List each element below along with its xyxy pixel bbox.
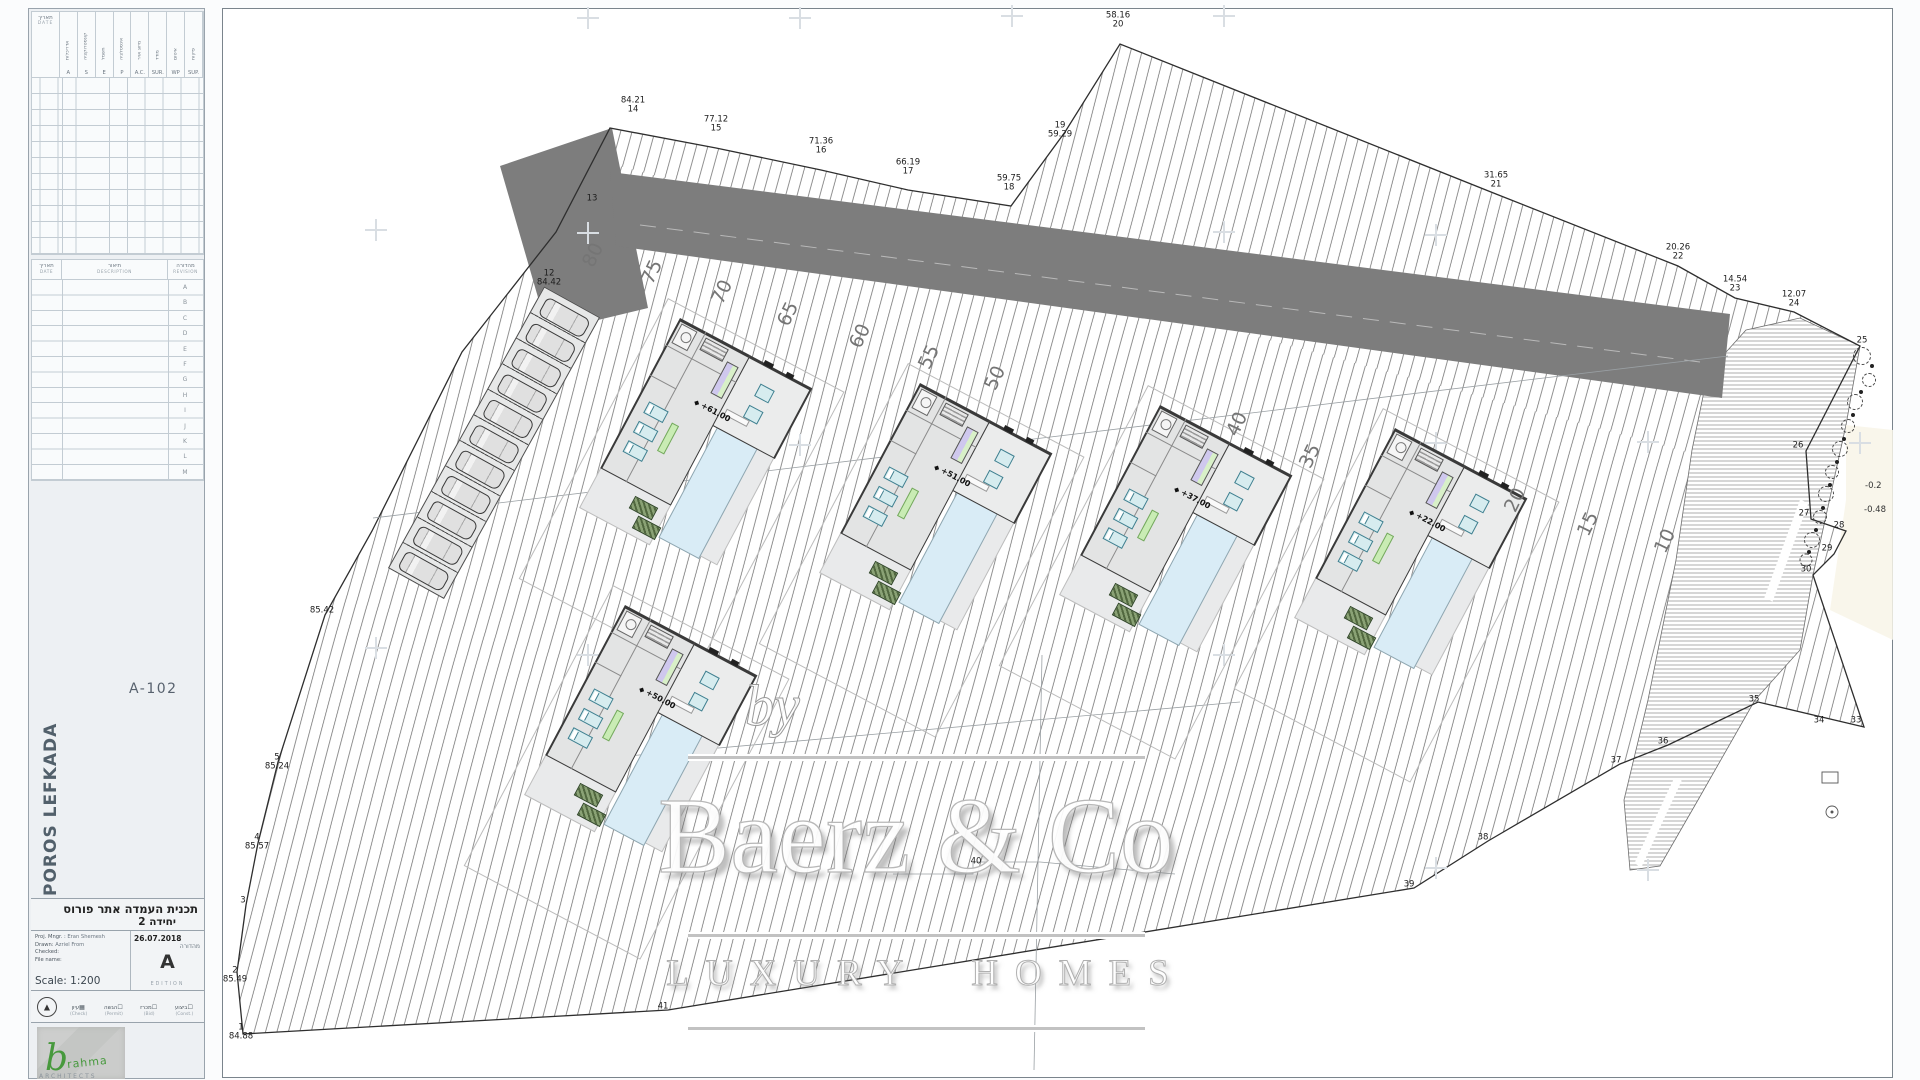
survey-point-label: 71.3616 bbox=[809, 137, 833, 156]
shrub-dot-icon bbox=[1814, 528, 1818, 532]
info-block: Proj. Mngr. : Eran Shemesh Drawn: Azriel… bbox=[31, 931, 204, 991]
revision-column-header: מהדורהREVISION bbox=[168, 260, 203, 279]
scale-label: Scale: 1:200 bbox=[35, 975, 100, 987]
survey-point-label: 26 bbox=[1793, 442, 1804, 451]
tree-icon bbox=[1832, 441, 1848, 457]
discipline-column-header: מיזוג אויר A.C. bbox=[131, 12, 149, 77]
survey-point-label: 36 bbox=[1658, 738, 1669, 747]
survey-point-label: 27 bbox=[1799, 510, 1810, 519]
shrub-dot-icon bbox=[1807, 550, 1811, 554]
survey-point-label: 35 bbox=[1749, 696, 1760, 705]
revision-letter: F bbox=[167, 357, 203, 372]
checkbox-icon: ☐ bbox=[187, 1004, 192, 1011]
status-stamp: מכרז☐ (Bid) bbox=[132, 995, 167, 1018]
survey-point-label: 59.7518 bbox=[997, 174, 1021, 193]
survey-point-label: 20.2622 bbox=[1666, 243, 1690, 262]
tree-icon bbox=[1804, 532, 1820, 548]
survey-point-label: 13 bbox=[587, 195, 598, 204]
edition-letter: A bbox=[131, 951, 204, 973]
checkbox-icon: ☐ bbox=[117, 1004, 122, 1011]
logo-rahma-text: rahma bbox=[66, 1054, 108, 1071]
survey-point-label: 184.88 bbox=[229, 1023, 253, 1042]
survey-point-label: 77.1215 bbox=[704, 115, 728, 134]
edition-label-he: מהדורה bbox=[180, 943, 200, 950]
tree-icon bbox=[1853, 347, 1871, 365]
survey-point-label: 28 bbox=[1834, 522, 1845, 531]
survey-point-label: 3 bbox=[240, 897, 245, 906]
revision-letter: H bbox=[167, 388, 203, 403]
survey-point-label: 40 bbox=[971, 858, 982, 867]
revision-letter: M bbox=[167, 465, 203, 480]
survey-point-label: 84.2114 bbox=[621, 96, 645, 115]
revision-letter: E bbox=[167, 342, 203, 357]
status-stamp: הגשה☐ (Permit) bbox=[96, 995, 131, 1018]
date-column-header: תאריךDATE bbox=[32, 12, 60, 77]
status-stamp: ביצוע☐ (Const.) bbox=[167, 995, 202, 1018]
shrub-dot-icon bbox=[1828, 483, 1832, 487]
checkbox-icon: ▦ bbox=[79, 1004, 85, 1011]
survey-point-label: 585.24 bbox=[265, 753, 289, 772]
description-column-header: תיאורDESCRIPTION bbox=[62, 260, 168, 279]
drawing-title: תכנית העמדה אתר פורוס bbox=[31, 902, 198, 916]
revision-letter: C bbox=[167, 311, 203, 326]
revision-letter: L bbox=[167, 449, 203, 464]
survey-point-label: 12.0724 bbox=[1782, 290, 1806, 309]
status-stamp-row: עיון▦ (Check) הגשה☐ (Permit) מכרז☐ (Bid)… bbox=[31, 991, 204, 1023]
discipline-column-header: אדריכלות A bbox=[60, 12, 78, 77]
revision-table-rows bbox=[32, 78, 203, 254]
survey-point-label: 30 bbox=[1801, 566, 1812, 575]
tree-icon bbox=[1847, 394, 1863, 410]
survey-point-label: 25 bbox=[1857, 337, 1868, 346]
survey-point-label: 34 bbox=[1814, 717, 1825, 726]
discipline-column-header: איטום WP bbox=[167, 12, 185, 77]
shrub-dot-icon bbox=[1859, 390, 1863, 394]
survey-point-label: 33 bbox=[1851, 717, 1862, 726]
revision-letter: I bbox=[167, 403, 203, 418]
shrub-dot-icon bbox=[1851, 413, 1855, 417]
shrub-dot-icon bbox=[1835, 460, 1839, 464]
survey-point-label: 1959.29 bbox=[1048, 121, 1072, 140]
description-revision-table: תאריךDATE תיאורDESCRIPTION מהדורהREVISIO… bbox=[31, 259, 204, 481]
depth-mark-label: -0.2 bbox=[1865, 481, 1882, 491]
discipline-column-header: קונסטרוקציה S bbox=[78, 12, 96, 77]
discipline-column-header: אינסטלציה P bbox=[114, 12, 132, 77]
revision-letter: J bbox=[167, 419, 203, 434]
survey-point-label: 485.57 bbox=[245, 833, 269, 852]
revision-letter: B bbox=[167, 295, 203, 310]
revision-rows: ABCDEFGHIJKLM bbox=[32, 280, 203, 480]
tree-icon bbox=[1862, 373, 1876, 387]
shrub-dot-icon bbox=[1842, 437, 1846, 441]
terrain-contours bbox=[237, 44, 1864, 1034]
survey-point-label: 41 bbox=[658, 1003, 669, 1012]
drawing-subtitle: יחידה 2 bbox=[31, 916, 198, 928]
survey-point-label: 39 bbox=[1404, 881, 1415, 890]
date-column-header: תאריךDATE bbox=[32, 260, 62, 279]
issue-date: 26.07.2018 bbox=[134, 934, 181, 943]
logo-b-glyph: b bbox=[45, 1041, 68, 1077]
shrub-dot-icon bbox=[1821, 506, 1825, 510]
discipline-column-header: פיקוח SUP. bbox=[185, 12, 203, 77]
north-arrow-icon bbox=[37, 997, 57, 1017]
survey-point-label: 58.1620 bbox=[1106, 11, 1130, 30]
tree-icon bbox=[1818, 486, 1834, 502]
survey-point-label: 31.6521 bbox=[1484, 171, 1508, 190]
survey-point-label: 285.49 bbox=[223, 966, 247, 985]
depth-mark-label: -0.48 bbox=[1864, 505, 1886, 515]
revision-letter: A bbox=[167, 280, 203, 295]
shrub-dot-icon bbox=[1870, 364, 1874, 368]
tree-icon bbox=[1813, 510, 1827, 524]
architect-logo: b rahma bbox=[37, 1027, 125, 1079]
tree-icon bbox=[1841, 419, 1855, 433]
edition-label-en: EDITION bbox=[131, 982, 204, 987]
discipline-column-header: מודד SUR. bbox=[149, 12, 167, 77]
revision-letter: K bbox=[167, 434, 203, 449]
revision-letter: D bbox=[167, 326, 203, 341]
discipline-column-header: חשמל E bbox=[96, 12, 114, 77]
survey-point-label: 85.42 bbox=[310, 607, 334, 616]
survey-point-label: 37 bbox=[1611, 757, 1622, 766]
survey-point-label: 66.1917 bbox=[896, 158, 920, 177]
status-stamp: עיון▦ (Check) bbox=[61, 995, 96, 1018]
revision-letter: G bbox=[167, 372, 203, 387]
survey-point-label: 1284.42 bbox=[537, 269, 561, 288]
tree-icon bbox=[1825, 465, 1839, 479]
checkbox-icon: ☐ bbox=[152, 1004, 157, 1011]
discipline-revision-table: תאריךDATE אדריכלות A קונסטרוקציה S חשמל … bbox=[31, 11, 204, 255]
survey-point-label: 29 bbox=[1822, 545, 1833, 554]
survey-point-label: 38 bbox=[1478, 834, 1489, 843]
survey-point-label: 14.5423 bbox=[1723, 275, 1747, 294]
structure-square bbox=[1822, 772, 1838, 783]
drawn-by: Azriel From bbox=[55, 942, 84, 948]
title-block-sidebar: תאריךDATE אדריכלות A קונסטרוקציה S חשמל … bbox=[28, 8, 205, 1079]
project-manager: Eran Shemesh bbox=[67, 934, 105, 940]
drawing-number: A-102 bbox=[129, 681, 178, 697]
project-name-vertical: POROS LEFKADA bbox=[41, 723, 61, 896]
drawing-title-block: תכנית העמדה אתר פורוס יחידה 2 bbox=[31, 898, 204, 931]
